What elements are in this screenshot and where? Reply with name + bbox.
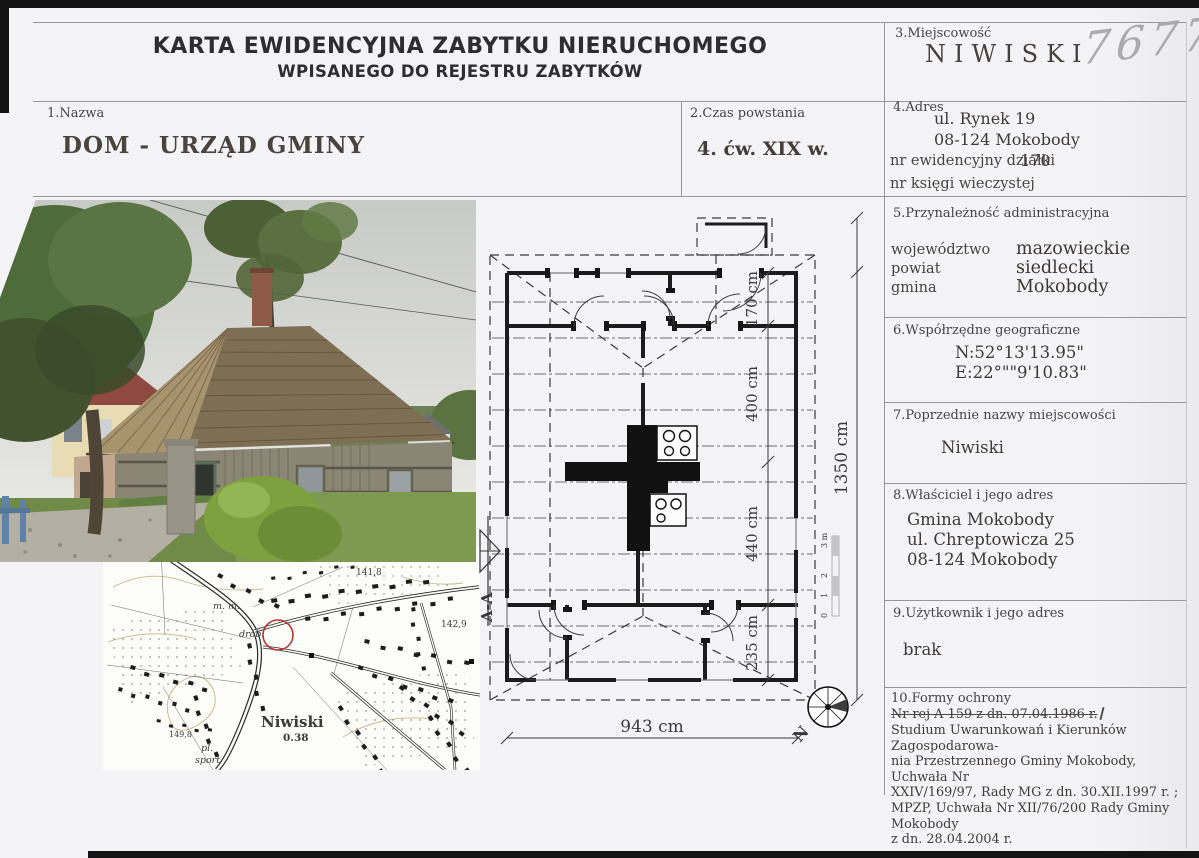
scale-3m: 3 m (820, 532, 829, 548)
czas-powstania-value: 4. ćw. XIX w. (697, 138, 829, 160)
dzialka-value: 170 (1020, 151, 1051, 170)
struck-register-entry: Nr rej A-159 z dn. 07.04.1986 r. (891, 707, 1098, 722)
scan-edge-left (0, 0, 9, 113)
scan-edge-top (0, 0, 1199, 8)
chimney-cap (250, 268, 274, 273)
miejscowosc-label: 3.Miejscowość (895, 26, 991, 41)
adres-line1: ul. Rynek 19 (934, 109, 1035, 128)
elevation-label: 142,9 (441, 620, 467, 630)
dim-1350: 1350 cm (832, 421, 852, 495)
card-top-rule (33, 22, 1186, 23)
gate-pillar (167, 442, 195, 534)
poprzednie-nazwy-label: 7.Poprzednie nazwy miejscowości (893, 408, 1116, 423)
bush-highlight (218, 482, 270, 518)
latitude-value: N:52°13'13.95" (955, 343, 1084, 362)
building-photo (0, 200, 476, 562)
header-bottom-rule (33, 101, 1186, 102)
section-marker: A-A (478, 516, 500, 626)
sec8-9-rule (884, 600, 1186, 601)
uzytkownik-label: 9.Użytkownik i jego adres (893, 606, 1064, 621)
map-note: drób. (239, 629, 264, 640)
czas-powstania-label: 2.Czas powstania (690, 106, 805, 121)
porch-wall (705, 224, 766, 248)
formy-line: nia Przestrzennego Gminy Mokobody, Uchwa… (891, 754, 1191, 785)
wlasciciel-line1: Gmina Mokobody (907, 510, 1054, 529)
poprzednie-nazwy-value: Niwiski (941, 438, 1004, 457)
card-subtitle: WPISANEGO DO REJESTRU ZABYTKÓW (60, 62, 860, 81)
adres-line2: 08-124 Mokobody (934, 130, 1080, 149)
compass-rose (808, 687, 848, 727)
gmina-value: Mokobody (1016, 277, 1108, 297)
pencil-hook-mark (1099, 707, 1104, 720)
row1-bottom-rule (33, 196, 1186, 197)
formy-line: XXIV/169/97, Rady MG z dn. 30.XII.1997 r… (891, 785, 1191, 801)
scale-bar: 3 m 2 1 0 (820, 532, 839, 618)
gmina-key: gmina (891, 280, 937, 296)
map-note: m. m. (213, 601, 240, 612)
nazwa-value: DOM - URZĄD GMINY (62, 132, 365, 159)
map-note: pl. (201, 743, 213, 754)
sec6-7-rule (884, 402, 1186, 403)
chimney (252, 270, 272, 326)
section-marker-label: A-A (478, 592, 496, 623)
wlasciciel-line3: 08-124 Mokobody (907, 550, 1057, 569)
formy-line: MPZP, Uchwała Nr XII/76/200 Rady Gminy M… (891, 801, 1191, 832)
dim-943: 943 cm (620, 717, 684, 737)
sec9-10-rule (884, 687, 1186, 688)
handwritten-inventory-number: 7677 (1080, 7, 1199, 76)
wojewodztwo-value: mazowieckie (1016, 239, 1130, 259)
stove (657, 426, 697, 460)
bush (258, 506, 342, 562)
formy-ochrony-body: Studium Uwarunkowań i Kierunków Zagospod… (891, 723, 1191, 848)
dim-400: 400 cm (743, 366, 761, 422)
floor-plan-drawing: 170 cm 400 cm 440 cm 235 cm 1350 cm 943 … (476, 198, 880, 770)
photo-illustration (0, 200, 476, 562)
przynaleznosc-label: 5.Przynależność administracyjna (893, 206, 1109, 221)
nazwa-label: 1.Nazwa (47, 106, 104, 121)
elevation-label: 149,8 (169, 730, 192, 739)
dim-440: 440 cm (743, 506, 761, 562)
powiat-key: powiat (891, 261, 941, 277)
wlasciciel-label: 8.Właściciel i jego adres (893, 488, 1053, 503)
gate-pillar-cap (164, 439, 198, 446)
wspolrzedne-label: 6.Współrzędne geograficzne (893, 323, 1080, 338)
scale-0: 0 (820, 613, 829, 618)
elevation-label: 141,8 (356, 568, 382, 578)
building-row (408, 607, 426, 671)
north-label: N (789, 722, 813, 746)
map-note: sport (195, 755, 220, 766)
uzytkownik-value: brak (903, 640, 941, 659)
wojewodztwo-key: województwo (891, 242, 990, 258)
scanned-record-card: KARTA EWIDENCYJNA ZABYTKU NIERUCHOMEGO W… (0, 0, 1199, 858)
formy-line: Studium Uwarunkowań i Kierunków Zagospod… (891, 723, 1191, 754)
longitude-value: E:22°""9'10.83" (955, 363, 1087, 382)
powiat-value: siedlecki (1016, 258, 1094, 278)
scan-edge-bottom (88, 851, 1199, 858)
dim-235: 235 cm (743, 615, 761, 671)
wlasciciel-line2: ul. Chreptowicza 25 (907, 530, 1075, 549)
right-column-divider (884, 22, 885, 795)
miejscowosc-value: NIWISKI (925, 40, 1089, 68)
formy-ochrony-label: 10.Formy ochrony (891, 691, 1011, 706)
scale-1: 1 (820, 593, 829, 598)
scale-2: 2 (820, 573, 829, 578)
floor-plan: 170 cm 400 cm 440 cm 235 cm 1350 cm 943 … (476, 198, 880, 770)
map-point-marker (309, 653, 314, 658)
location-map: 141,8 142,9 149,8 m. m. drób. pl. sport … (103, 547, 480, 770)
stove (650, 494, 686, 526)
ksiega-label: nr księgi wieczystej (890, 176, 1035, 192)
orchard-dots (105, 605, 243, 705)
sec5-6-rule (884, 317, 1186, 318)
map-illustration: 141,8 142,9 149,8 m. m. drób. pl. sport … (103, 547, 480, 770)
dim-170: 170 cm (743, 271, 761, 327)
map-point-marker (469, 659, 474, 664)
map-place-area: 0.38 (283, 732, 309, 744)
nazwa-czas-divider (681, 101, 682, 196)
card-title: KARTA EWIDENCYJNA ZABYTKU NIERUCHOMEGO (60, 34, 860, 59)
sec7-8-rule (884, 483, 1186, 484)
formy-line: z dn. 28.04.2004 r. (891, 832, 1191, 848)
map-place-name: Niwiski (261, 713, 324, 731)
formy-ochrony-struck-line: Nr rej A-159 z dn. 07.04.1986 r. (891, 707, 1103, 723)
chimney-mass (565, 425, 700, 551)
